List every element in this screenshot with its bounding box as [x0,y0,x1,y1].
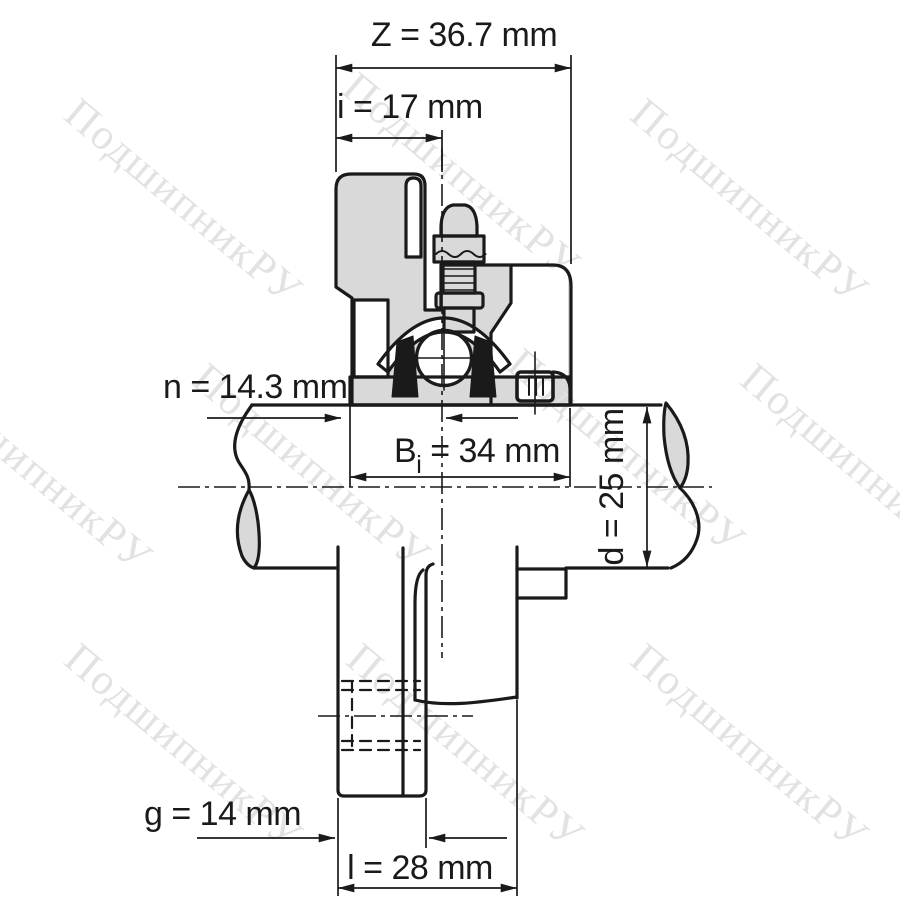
dim-label-z: Z = 36.7 mm [371,18,557,52]
watermark-text: ПодшипникРУ [338,635,594,860]
grease-shank-fill [443,262,475,293]
collar-bottom-section [517,569,566,598]
watermark-text: ПодшипникРУ [0,357,161,582]
dim-label-bi: Bi = 34 mm [394,434,560,475]
watermark-text: ПодшипникРУ [622,90,878,315]
dim-label-n: n = 14.3 mm [163,370,347,404]
dim-label-d: d = 25 mm [595,408,629,565]
dim-bi-value: = 34 mm [421,432,560,470]
dim-bi-symbol: B [394,432,416,470]
watermark-text: ПодшипникРУ [622,635,878,860]
grease-base-fill [436,293,483,308]
watermark-text: ПодшипникРУ [56,90,312,315]
flange-strip-fill [406,178,421,257]
drawing-canvas: ПодшипникРУ ПодшипникРУ ПодшипникРУ Подш… [0,0,900,900]
dim-bi-subscript: i [416,451,421,479]
dim-label-l: l = 28 mm [347,851,493,885]
dim-label-g: g = 14 mm [144,797,301,831]
watermark-text: ПодшипникРУ [732,355,900,580]
dim-label-i: i = 17 mm [337,90,483,124]
